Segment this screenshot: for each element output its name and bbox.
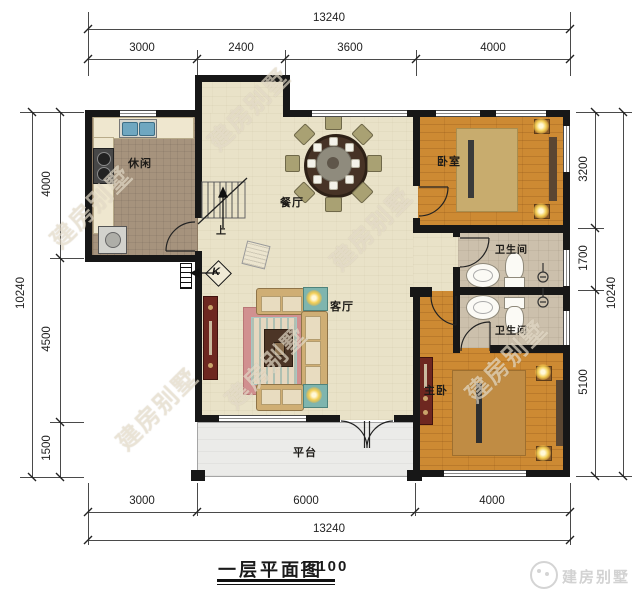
plan-linework [0, 0, 640, 607]
floor-plan-canvas: K 休闲 餐厅 客厅 卧室 卫生间 卫生间 主卧 平台 上 [0, 0, 640, 607]
door-swing-icons [166, 187, 490, 448]
meter-arrow-icon [191, 269, 220, 277]
dimension-ticks [28, 25, 627, 544]
shower-head-icon [538, 263, 548, 307]
